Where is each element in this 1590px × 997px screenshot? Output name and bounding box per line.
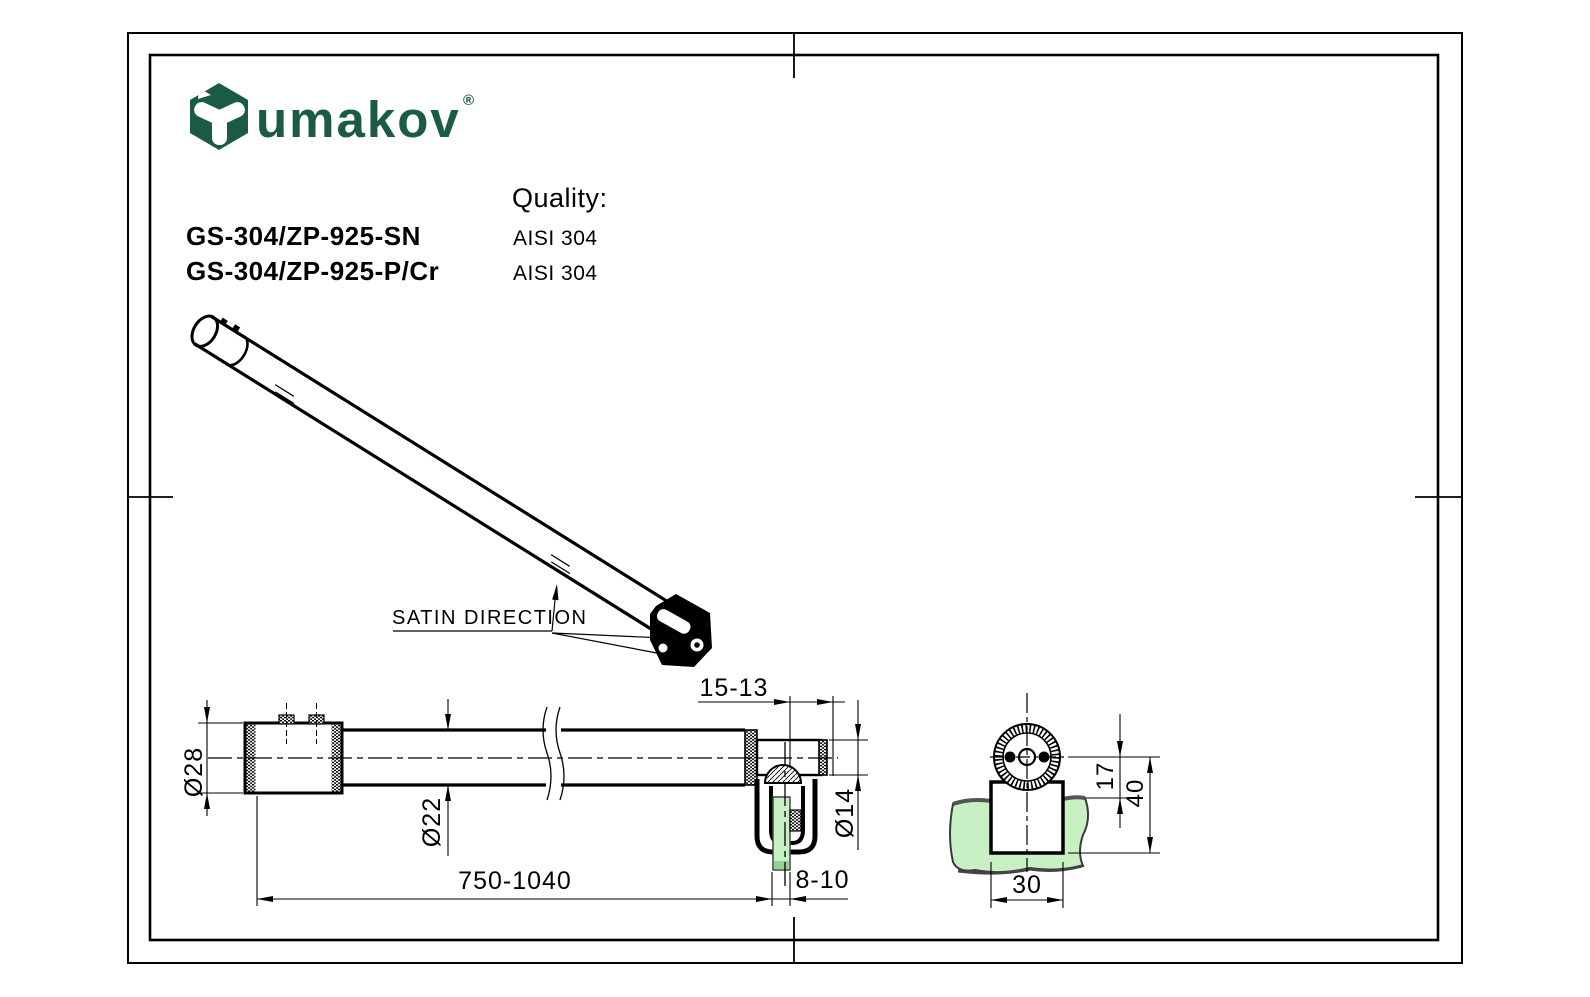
- side-view: [208, 703, 838, 886]
- drawing-canvas: [0, 0, 1590, 997]
- dim-glass-thickness: 8-10: [775, 865, 870, 895]
- umakov-logo-icon: [190, 83, 248, 150]
- isometric-clamp: [650, 594, 712, 667]
- product-quality-1: AISI 304: [513, 227, 598, 251]
- quality-label: Quality:: [512, 183, 608, 214]
- dim-glass-inset: 17: [1091, 736, 1121, 816]
- satin-direction-label: SATIN DIRECTION: [392, 607, 587, 630]
- product-code-1: GS-304/ZP-925-SN: [186, 221, 421, 252]
- brand-wordmark: umakov: [256, 90, 461, 149]
- dim-tube-diameter: Ø22: [417, 782, 447, 862]
- satin-direction-marks: [272, 383, 573, 575]
- technical-drawing-sheet: umakov ® Quality: GS-304/ZP-925-SN AISI …: [0, 0, 1590, 997]
- dim-sleeve-diameter: Ø28: [179, 732, 209, 812]
- dim-rod-diameter: Ø14: [830, 773, 860, 853]
- dim-end-offset: 15-13: [684, 673, 784, 703]
- dim-clamp-width: 30: [977, 870, 1077, 900]
- dim-clamp-height: 40: [1121, 753, 1151, 833]
- product-code-2: GS-304/ZP-925-P/Cr: [186, 256, 439, 287]
- product-quality-2: AISI 304: [513, 262, 598, 286]
- registered-trademark: ®: [463, 92, 474, 109]
- dim-length-range: 750-1040: [435, 866, 595, 896]
